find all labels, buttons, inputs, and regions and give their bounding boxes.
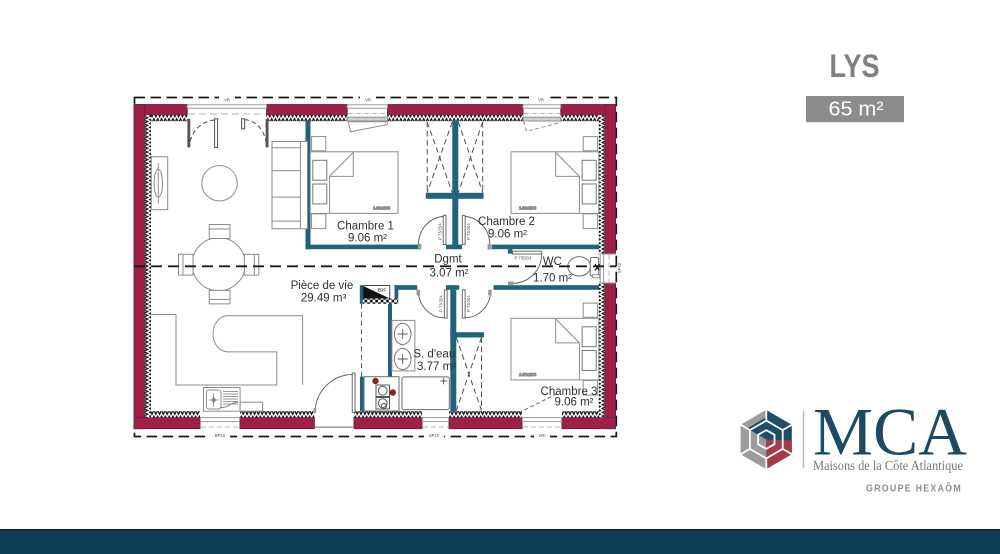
svg-text:P 73/204: P 73/204 — [466, 223, 471, 240]
svg-text:1.70 m²: 1.70 m² — [533, 273, 572, 285]
svg-text:9.06 m²: 9.06 m² — [348, 233, 387, 245]
svg-text:VR: VR — [365, 98, 371, 103]
svg-text:EDF: EDF — [378, 288, 387, 293]
svg-text:SP10: SP10 — [429, 433, 440, 438]
svg-text:Pièce de vie: Pièce de vie — [291, 280, 354, 292]
svg-text:3.77 m²: 3.77 m² — [417, 361, 456, 373]
svg-text:29.49 m³: 29.49 m³ — [301, 293, 347, 305]
svg-text:3.07 m²: 3.07 m² — [430, 268, 469, 280]
svg-text:VR: VR — [538, 98, 544, 103]
svg-text:BP10: BP10 — [215, 433, 226, 438]
svg-text:LYS: LYS — [830, 48, 880, 84]
svg-text:VRI: VRI — [539, 433, 546, 438]
svg-text:Chambre 1: Chambre 1 — [337, 221, 394, 233]
svg-text:9.06 m²: 9.06 m² — [488, 229, 527, 241]
svg-text:P 73/204: P 73/204 — [437, 223, 442, 240]
svg-text:Dgmt: Dgmt — [434, 254, 462, 266]
svg-text:P 73/204: P 73/204 — [466, 295, 471, 312]
svg-text:P 73/204: P 73/204 — [438, 295, 443, 312]
svg-text:Chambre 2: Chambre 2 — [478, 216, 535, 228]
svg-text:S. d'eau: S. d'eau — [413, 349, 455, 361]
svg-text:140x200: 140x200 — [519, 372, 537, 377]
svg-text:9.06 m²: 9.06 m² — [555, 397, 594, 409]
svg-text:VR: VR — [224, 98, 230, 103]
svg-text:140x200: 140x200 — [519, 206, 537, 211]
svg-text:140x200: 140x200 — [373, 206, 391, 211]
svg-text:SP10: SP10 — [617, 262, 622, 273]
svg-text:GROUPE HEXAÔM: GROUPE HEXAÔM — [866, 482, 962, 495]
svg-text:WC: WC — [543, 256, 562, 268]
svg-text:65 m²: 65 m² — [829, 98, 884, 121]
svg-text:Maisons de la Côte Atlantique: Maisons de la Côte Atlantique — [813, 458, 963, 473]
svg-text:P 73/204: P 73/204 — [515, 256, 532, 261]
